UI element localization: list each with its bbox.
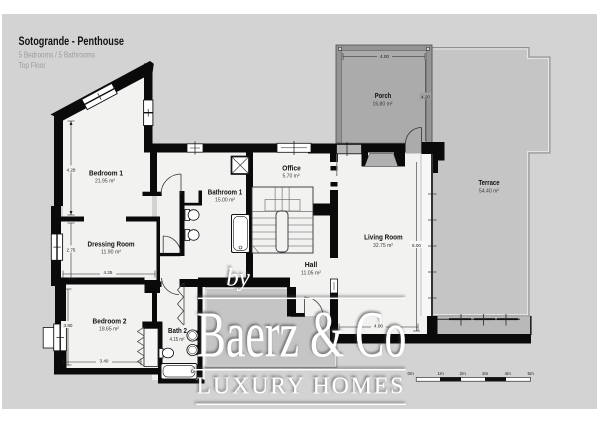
svg-text:4.15 m²: 4.15 m² (170, 337, 185, 343)
svg-text:Bathroom 1: Bathroom 1 (208, 188, 243, 197)
svg-text:4m: 4m (505, 371, 512, 376)
svg-text:Bath 2: Bath 2 (168, 326, 187, 335)
svg-text:Porch: Porch (375, 91, 392, 100)
svg-text:Hall: Hall (305, 260, 318, 269)
svg-text:Terrace: Terrace (479, 178, 501, 187)
svg-text:Baerz & Co: Baerz & Co (197, 299, 407, 372)
svg-text:2m: 2m (460, 371, 467, 376)
svg-text:Sotogrande - Penthouse: Sotogrande - Penthouse (19, 34, 125, 48)
svg-text:18.65 m²: 18.65 m² (99, 327, 119, 333)
svg-text:Living Room: Living Room (364, 233, 403, 242)
svg-text:Bedroom 1: Bedroom 1 (89, 169, 124, 178)
svg-text:2.75: 2.75 (67, 247, 76, 252)
svg-text:4.20: 4.20 (421, 94, 430, 99)
svg-text:0m: 0m (408, 371, 415, 376)
svg-text:3.80: 3.80 (64, 323, 73, 328)
svg-text:32.75 m²: 32.75 m² (373, 243, 393, 249)
svg-text:4.25: 4.25 (104, 270, 113, 275)
svg-text:3.40: 3.40 (100, 358, 109, 363)
svg-text:5m: 5m (528, 371, 535, 376)
svg-text:Dressing Room: Dressing Room (88, 239, 135, 248)
svg-text:Bedroom 2: Bedroom 2 (93, 317, 127, 326)
svg-text:54.40 m²: 54.40 m² (479, 189, 499, 195)
svg-text:Office: Office (282, 164, 301, 173)
svg-text:4.00: 4.00 (380, 54, 389, 59)
svg-text:1m: 1m (438, 371, 445, 376)
svg-text:by: by (226, 265, 251, 292)
svg-text:16.80 m²: 16.80 m² (373, 101, 393, 107)
svg-text:Top Floor: Top Floor (19, 60, 46, 70)
svg-text:11.90 m²: 11.90 m² (101, 249, 121, 255)
svg-text:11.05 m²: 11.05 m² (301, 270, 321, 276)
svg-text:5.70 m²: 5.70 m² (283, 174, 300, 180)
svg-text:21.95 m²: 21.95 m² (95, 179, 115, 185)
svg-text:4.28: 4.28 (67, 167, 76, 172)
svg-text:5 Bedrooms / 5 Bathrooms: 5 Bedrooms / 5 Bathrooms (19, 50, 96, 60)
svg-text:6.00: 6.00 (412, 243, 421, 248)
svg-text:3m: 3m (482, 371, 489, 376)
svg-text:15.00 m²: 15.00 m² (215, 197, 235, 203)
